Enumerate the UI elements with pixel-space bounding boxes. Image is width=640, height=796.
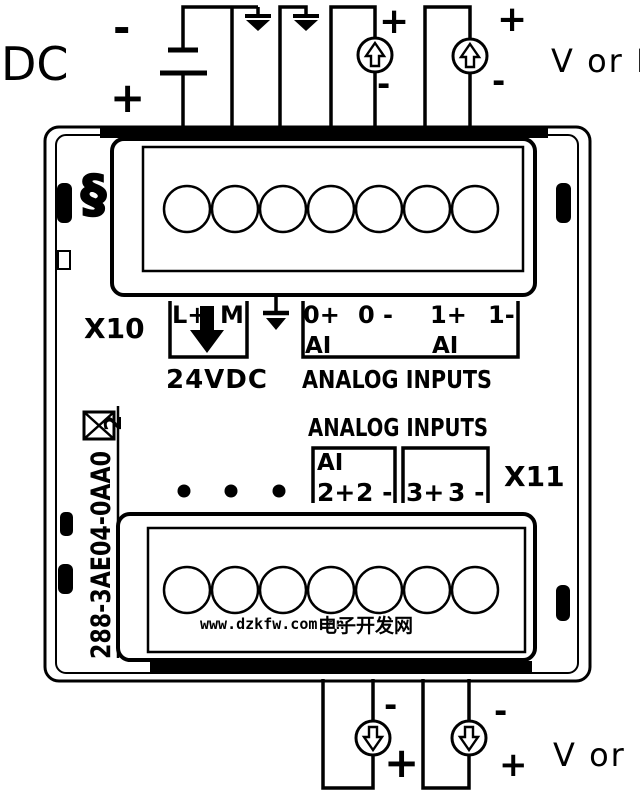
left-lower-bump-2: [58, 564, 73, 594]
watermark-site: 电子开发网: [318, 614, 413, 637]
port-marker-number: 2: [101, 415, 127, 431]
left-clip-notch: [58, 251, 70, 269]
terminal-hole: [404, 567, 450, 613]
v-or-i-bottom-label: V or I: [553, 736, 640, 774]
terminal-hole: [212, 567, 258, 613]
source3-minus-label: -: [494, 692, 507, 730]
source1-minus-label: -: [492, 62, 505, 100]
terminal-hole: [452, 186, 498, 232]
right-clip-bump: [556, 183, 571, 223]
earth-ground-icon: [245, 14, 271, 31]
left-lower-bump-1: [60, 512, 73, 536]
source2-minus-label: -: [384, 686, 397, 724]
m-terminal-label: M: [220, 301, 244, 329]
top-wiring: [183, 7, 470, 128]
ai-x11-label: AI: [317, 450, 343, 476]
terminal-hole: [212, 186, 258, 232]
analog-inputs-x10-caption: ANALOG INPUTS: [302, 365, 492, 394]
source3-plus-label: +: [499, 745, 528, 785]
terminal-0plus-label: 0+: [303, 301, 340, 329]
terminal-2plus-label: 2+: [317, 478, 355, 507]
dot: [225, 485, 238, 498]
part-number-label: 288-3AE04-0AA0: [86, 451, 117, 659]
terminal-hole: [356, 567, 402, 613]
terminal-0minus-label: 0 -: [358, 301, 393, 329]
ai0-label: AI: [305, 333, 331, 359]
dot: [273, 485, 286, 498]
earth-ground-icon: [293, 14, 319, 31]
terminal-hole: [260, 567, 306, 613]
terminal-hole: [404, 186, 450, 232]
analog-module-wiring-diagram: DC - + + - + - V or I § X10 L+ M 24VDC 0: [0, 0, 640, 796]
source2-plus-label: +: [384, 738, 419, 787]
terminal-1minus-label: 1-: [488, 301, 515, 329]
terminal-hole: [308, 567, 354, 613]
x10-connector-label: X10: [84, 312, 145, 345]
source1-plus-label: +: [497, 0, 527, 40]
terminal-hole: [452, 567, 498, 613]
battery-plus-label: +: [110, 73, 145, 122]
right-lower-bump: [556, 585, 570, 621]
module-top-rail: [100, 127, 548, 138]
v-or-i-top-label: V or I: [551, 42, 640, 80]
terminal-hole: [260, 186, 306, 232]
dot: [178, 485, 191, 498]
terminal-hole: [164, 186, 210, 232]
din-rail-clip-icon: §: [81, 165, 106, 223]
terminal-3minus-label: 3 -: [448, 478, 484, 507]
battery-minus-label: -: [113, 3, 130, 52]
current-source-3-icon: [452, 721, 486, 755]
source0-plus-label: +: [379, 1, 409, 42]
left-clip-bump: [57, 183, 72, 223]
terminal-3plus-label: 3+: [406, 478, 444, 507]
ai1-label: AI: [432, 333, 458, 359]
current-source-1-icon: [453, 39, 487, 73]
analog-inputs-x11-heading: ANALOG INPUTS: [308, 413, 488, 442]
x11-connector-label: X11: [504, 460, 565, 493]
source0-minus-label: -: [377, 65, 390, 103]
terminal-1plus-label: 1+: [430, 301, 467, 329]
dc-label: DC: [1, 37, 69, 91]
battery-symbol: [160, 50, 207, 73]
terminal-hole: [356, 186, 402, 232]
battery-top-wire: [183, 7, 258, 50]
terminal-hole: [164, 567, 210, 613]
wiring-diagram-page: DC - + + - + - V or I § X10 L+ M 24VDC 0: [0, 0, 640, 796]
module-bottom-rail: [150, 661, 532, 673]
terminal-hole: [308, 186, 354, 232]
24vdc-caption: 24VDC: [166, 365, 268, 395]
terminal-2minus-label: 2 -: [356, 478, 392, 507]
